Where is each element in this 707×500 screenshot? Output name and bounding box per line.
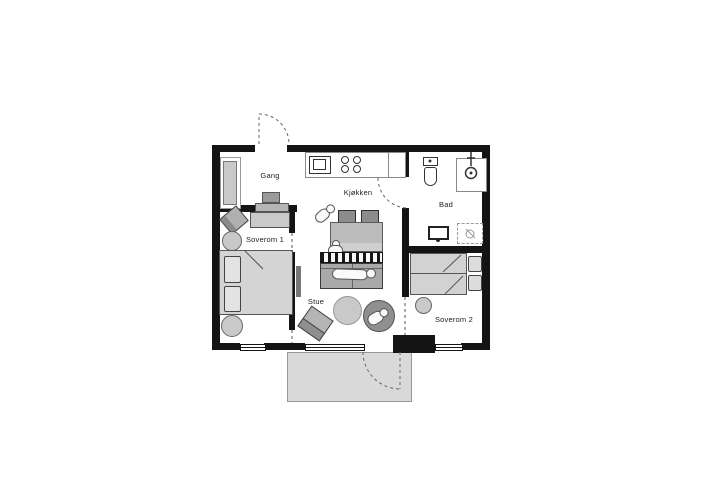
window-pane bbox=[436, 347, 462, 348]
armchair-backrest bbox=[297, 318, 325, 342]
stove-burner bbox=[353, 165, 361, 173]
desk bbox=[250, 212, 290, 228]
stove-burner bbox=[341, 156, 349, 164]
window-bottom-center bbox=[305, 344, 365, 351]
pillow bbox=[224, 286, 241, 312]
pillow bbox=[468, 256, 482, 272]
washing-machine bbox=[457, 223, 483, 244]
shower-stall bbox=[456, 158, 487, 192]
bed-soverom2 bbox=[410, 253, 467, 295]
coffee-table bbox=[333, 296, 362, 325]
console-object bbox=[262, 192, 280, 203]
sink-basin bbox=[313, 159, 326, 170]
wall-top-right bbox=[287, 145, 490, 152]
window-pane bbox=[241, 347, 265, 348]
window-bottom-left bbox=[240, 344, 266, 351]
console-table bbox=[255, 203, 289, 212]
wall-left bbox=[212, 145, 220, 350]
stool bbox=[221, 315, 243, 337]
stool bbox=[415, 297, 432, 314]
terrace-deck bbox=[287, 352, 412, 402]
bathroom-door-swing bbox=[378, 178, 408, 208]
room-label-kjokken: Kjøkken bbox=[344, 188, 373, 197]
room-label-soverom2: Soverom 2 bbox=[435, 315, 473, 324]
toilet-cistern bbox=[423, 157, 438, 166]
room-label-stue: Stue bbox=[308, 297, 324, 306]
stove-burner bbox=[353, 156, 361, 164]
armchair bbox=[297, 306, 333, 342]
toilet-bowl bbox=[424, 167, 437, 186]
window-pane bbox=[306, 347, 364, 348]
closet-cabinet bbox=[223, 161, 237, 205]
floorplan-canvas: Gang Kjøkken Soverom 1 Stue bbox=[0, 0, 707, 500]
pillow bbox=[468, 275, 482, 291]
kitchen-counter-divider bbox=[388, 152, 389, 178]
bed-seam bbox=[411, 273, 466, 274]
window-bottom-right bbox=[435, 344, 463, 351]
wall-bottom-3 bbox=[461, 343, 490, 350]
room-label-bad: Bad bbox=[439, 200, 453, 209]
pillow bbox=[224, 256, 241, 283]
stool bbox=[222, 231, 242, 251]
room-label-soverom1: Soverom 1 bbox=[246, 235, 284, 244]
tv-on-wall bbox=[296, 266, 301, 297]
stove-burner bbox=[341, 165, 349, 173]
sink-faucet bbox=[436, 238, 440, 242]
wall-bottom-block bbox=[393, 335, 435, 353]
wall-bottom-1 bbox=[212, 343, 240, 350]
entrance-door-swing bbox=[259, 114, 289, 144]
wall-bottom-2 bbox=[264, 343, 305, 350]
striped-bench bbox=[320, 252, 383, 263]
wall-bad-bottom bbox=[402, 246, 490, 253]
person-on-sofa bbox=[332, 263, 381, 285]
room-label-gang: Gang bbox=[260, 171, 279, 180]
